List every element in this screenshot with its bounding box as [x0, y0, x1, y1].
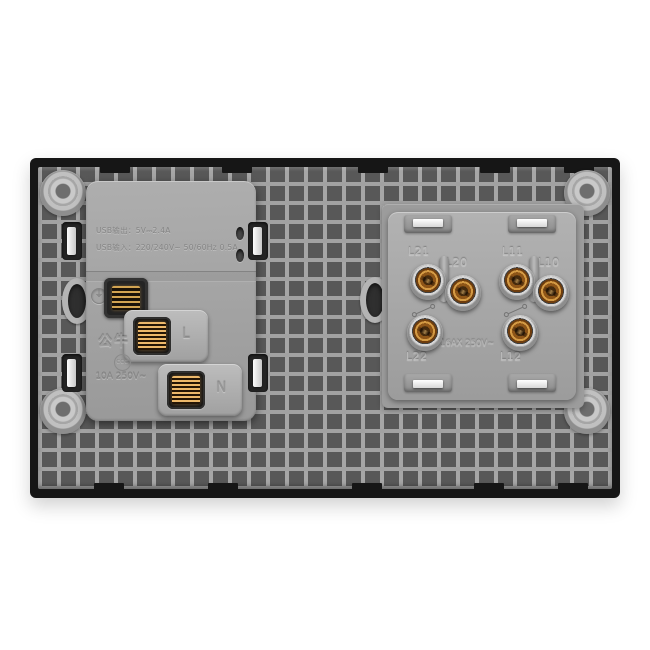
corner-screw-boss [40, 388, 86, 434]
edge-notch [208, 483, 238, 492]
clip-spring [67, 227, 76, 255]
neutral-wire-clamp [167, 371, 205, 409]
switch-module: L21 L20 L11 L10 L22 L12 16AX 250V~ [388, 212, 576, 400]
edge-notch [474, 483, 504, 492]
retention-clip [248, 354, 268, 392]
live-wire-clamp [133, 317, 171, 355]
switch-module-rating: 16AX 250V~ [440, 339, 494, 349]
terminal-label-l21: L21 [408, 245, 430, 258]
screw-terminal-l21 [410, 264, 446, 300]
clip-spring [253, 227, 262, 255]
neutral-terminal: N [158, 364, 242, 416]
screw-terminal-l11 [499, 264, 535, 300]
retention-clip [62, 222, 82, 260]
clip-spring [67, 359, 76, 387]
tab-insert [413, 219, 443, 227]
terminal-label-l20: L20 [446, 256, 468, 269]
tab-insert [413, 380, 443, 388]
retention-clip [248, 222, 268, 260]
connector-pins [112, 286, 140, 310]
ccc-mark-icon: CCC [114, 354, 131, 371]
wall-plate-back: USB输出：5V⎓2.4A USB输入：220/240V~ 50/60Hz 0.… [30, 158, 620, 498]
retention-clip [62, 354, 82, 392]
screw-terminal-l20 [445, 275, 481, 311]
mounting-tab [508, 374, 556, 392]
mounting-tab [508, 215, 556, 233]
edge-notch [358, 164, 388, 173]
edge-notch [222, 164, 252, 173]
live-terminal-label: L [182, 326, 190, 342]
usb-input-spec: USB输入：220/240V~ 50/60Hz 0.5A [96, 242, 238, 253]
terminal-label-l12: L12 [500, 350, 522, 363]
switch-schematic-mark [508, 307, 522, 314]
brand-logo: 公牛 [98, 331, 130, 351]
vent-hole [236, 227, 244, 240]
terminal-label-l10: L10 [538, 256, 560, 269]
usb-module-rating: 10A 250V~ [88, 372, 154, 382]
edge-notch [480, 164, 510, 173]
edge-notch [100, 164, 130, 173]
edge-notch [94, 483, 124, 492]
mounting-tab [404, 215, 452, 233]
edge-notch [558, 483, 588, 492]
screw-terminal-l10 [533, 275, 569, 311]
clip-spring [253, 359, 262, 387]
live-terminal: L [124, 310, 208, 362]
screw-terminal-l12 [502, 315, 538, 351]
usb-socket-module: USB输出：5V⎓2.4A USB输入：220/240V~ 50/60Hz 0.… [86, 181, 256, 421]
brass-clamp-coil [138, 322, 166, 350]
brass-clamp-coil [172, 376, 200, 404]
usb-output-spec: USB输出：5V⎓2.4A [96, 225, 171, 236]
screw-terminal-l22 [407, 315, 443, 351]
tab-insert [517, 219, 547, 227]
product-photo-canvas: USB输出：5V⎓2.4A USB输入：220/240V~ 50/60Hz 0.… [0, 0, 650, 650]
tab-insert [517, 380, 547, 388]
switch-schematic-mark [416, 307, 430, 314]
edge-notch [352, 483, 382, 492]
terminal-label-l22: L22 [406, 350, 428, 363]
corner-screw-boss [40, 170, 86, 216]
vent-hole [236, 249, 244, 262]
neutral-terminal-label: N [216, 380, 226, 396]
terminal-label-l11: L11 [502, 245, 524, 258]
mounting-tab [404, 374, 452, 392]
